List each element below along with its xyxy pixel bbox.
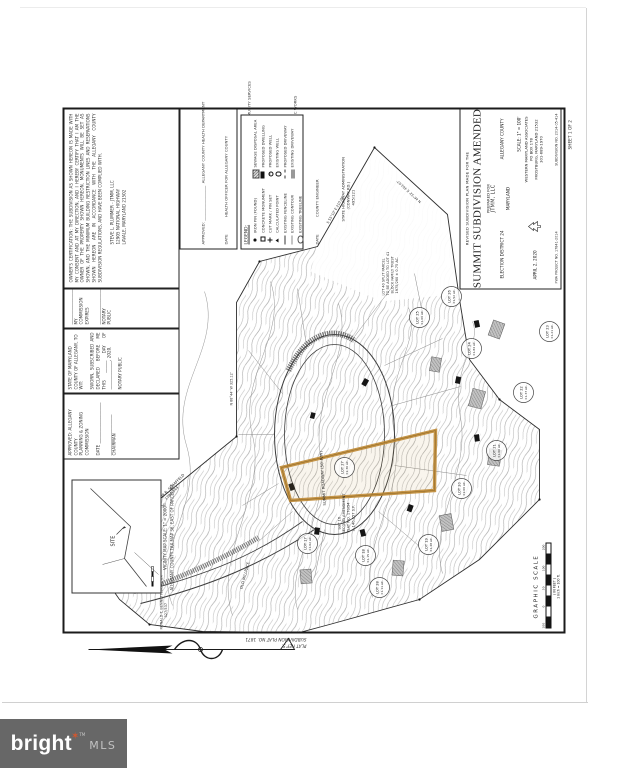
svg-text:LOT 22: LOT 22 (520, 386, 524, 399)
svg-text:327/537: 327/537 (164, 603, 168, 618)
notary-block: STATE OF MARYLAND COUNTY OF ALLEGANY, TO… (63, 329, 180, 394)
svg-text:±1.37 AC.: ±1.37 AC. (524, 385, 528, 400)
calculated-point-icon (275, 236, 280, 245)
tree-line-icon (297, 236, 302, 245)
certification-strip: APPROVED: ALLEGANY COUNTY PLANNING & ZON… (63, 108, 180, 460)
svg-text:LOT 28: LOT 28 (376, 580, 380, 593)
svg-text:BLOCK FAMILY TRUST: BLOCK FAMILY TRUST (391, 255, 395, 293)
dwelling-icon (260, 170, 265, 179)
surveyor-logo-tree-icon (527, 221, 546, 233)
svg-text:±1.06 AC.: ±1.06 AC. (420, 310, 424, 325)
existing-driveway-icon (290, 170, 295, 179)
county-approvals-block: APPROVED: __________________ ALLEGANY CO… (180, 108, 238, 250)
vicinity-site-label: SITE (111, 536, 117, 547)
graphic-scale: GRAPHIC SCALE 100 0 50 100 200 ( IN FEET… (534, 543, 562, 629)
title-block: REVISED SUBDIVISION PLAN MADE FOR THE SU… (460, 108, 562, 290)
vicinity-caption2: ALLEGANY COUNTY TAX MAP 36, EAST OF PARC… (169, 476, 174, 600)
plat-scan-photo: LOT 17 ±1.02 AC. LOT 18 ±1.15 AC. LOT 19… (0, 0, 628, 768)
svg-text:±1.15 AC.: ±1.15 AC. (366, 548, 370, 563)
existing-well-icon (275, 170, 280, 179)
svg-text:±1.11 AC.: ±1.11 AC. (380, 580, 384, 595)
concrete-monument-icon (260, 236, 265, 245)
svg-text:±2.30 AC.: ±2.30 AC. (345, 460, 349, 475)
svg-text:LOT 25: LOT 25 (416, 311, 420, 324)
svg-text:PLAT NO. 170/54: PLAT NO. 170/54 (347, 502, 351, 533)
plat-title: SUMMIT SUBDIVISION AMENDED (471, 109, 483, 289)
vicinity-map-sketch: SITE (73, 483, 159, 593)
legend-box: LEGEND: IRON PIN (FOUND) CONCRETE MONUME… (241, 115, 304, 250)
mls-logo-text: MLS (89, 739, 116, 752)
bright-logo-text: bright (11, 732, 72, 756)
sheet-number: SHEET 1 OF 2 (569, 120, 574, 149)
prepared-for-label: PREPARED FOR (485, 109, 490, 289)
vicinity-caption: VICINITY MAP SCALE: 1" = 2000' (163, 476, 168, 600)
contour-line-icon (290, 236, 295, 245)
lot16-label: LOT 16 (338, 516, 342, 529)
svg-text:LOT 21: LOT 21 (493, 444, 497, 457)
svg-text:LOT 24: LOT 24 (468, 341, 472, 354)
svg-text:±1.00 AC.: ±1.00 AC. (497, 443, 501, 458)
sheet-edge-shadow-bottom (2, 702, 588, 703)
election-district: ELECTION DISTRICT 24 (499, 230, 504, 278)
owner-signature-addr2: LAVALE, MARYLAND 21502 (122, 114, 128, 245)
proposed-driveway-icon (282, 170, 287, 179)
county-name: ALLEGANY COUNTY (499, 119, 504, 160)
proposed-well-icon (267, 170, 272, 179)
subdivision-number: SUBDIVISION NO. 2014-05-414 (555, 114, 559, 166)
svg-text:TO BE ADDED TO LOT 41: TO BE ADDED TO LOT 41 (386, 252, 390, 297)
state-name: MARYLAND (505, 109, 510, 289)
trust-note-label: LOT 40 SPLIT PARCEL (382, 258, 386, 295)
firm-phone: 301-689-1970 (539, 117, 544, 183)
svg-text:LOT 26: LOT 26 (448, 289, 452, 302)
client-name: JTMM, LLC (491, 109, 496, 289)
svg-text:±2.06 AC.: ±2.06 AC. (462, 481, 466, 496)
plan-type-line: REVISED SUBDIVISION PLAN MADE FOR THE (465, 109, 470, 289)
map-scale: SCALE: 1" = 100' (517, 117, 522, 152)
bright-mls-watermark: bright ✶ TM MLS (0, 719, 127, 768)
graphic-scale-label: GRAPHIC SCALE (534, 543, 540, 619)
commission-expires-block: __________________ MY COMMISSION EXPIRES… (63, 289, 180, 329)
svg-text:±1.21 AC.: ±1.21 AC. (550, 324, 554, 339)
sheet-edge-shadow-right (586, 8, 587, 702)
svg-text:±1.02 AC.: ±1.02 AC. (308, 536, 312, 551)
svg-text:LOT 20: LOT 20 (458, 481, 462, 494)
scale-bar (546, 543, 552, 629)
planning-commission-approval-block: APPROVED: ALLEGANY COUNTY PLANNING & ZON… (63, 394, 180, 460)
fence-line-icon (282, 236, 287, 245)
scale-note: 1 inch = 100 ft. (557, 545, 561, 629)
sheet-edge-shadow-top (20, 7, 586, 8)
svg-text:±1.52 AC.: ±1.52 AC. (452, 289, 456, 304)
vicinity-map-box: SITE (72, 480, 162, 594)
trademark-symbol: TM (79, 732, 85, 737)
svg-text:LOT 27: LOT 27 (341, 461, 345, 474)
bearing-label: N 88°44' W 325.12' (230, 372, 234, 405)
sewage-area-icon (253, 170, 258, 179)
svg-text:LOT 17: LOT 17 (304, 537, 308, 550)
svg-text:±1.84 AC.: ±1.84 AC. (472, 341, 476, 356)
svg-text:LOT 23: LOT 23 (546, 325, 550, 338)
svg-text:LOT 18: LOT 18 (362, 548, 366, 561)
svg-text:1975/260 ± 0.75 AC.: 1975/260 ± 0.75 AC. (395, 257, 399, 294)
svg-text:±1.48 AC.: ±1.48 AC. (429, 537, 433, 552)
plat-sheet: LOT 17 ±1.02 AC. LOT 18 ±1.15 AC. LOT 19… (63, 108, 566, 634)
svg-text:± 140,657 S.F.: ± 140,657 S.F. (351, 505, 355, 531)
plat-reference-note: PLAT REF'S. SUBDIVISION PLAT NO. 1871 (167, 635, 307, 648)
iron-pin-icon (253, 236, 258, 245)
owners-certification-block: OWNER'S CERTIFICATION: THE SUBDIVISION A… (63, 108, 180, 289)
project-number: FWA PROJECT NO. 17841-2014 (555, 231, 559, 283)
cut-mark-icon (267, 236, 272, 245)
svg-text:495/121: 495/121 (351, 189, 356, 205)
plat-date: APRIL 2, 2020 (533, 250, 538, 279)
legend-title: LEGEND: (245, 120, 250, 245)
svg-text:SECOND AMENDMENT: SECOND AMENDMENT (342, 493, 346, 534)
svg-text:LOT 19: LOT 19 (425, 537, 429, 550)
